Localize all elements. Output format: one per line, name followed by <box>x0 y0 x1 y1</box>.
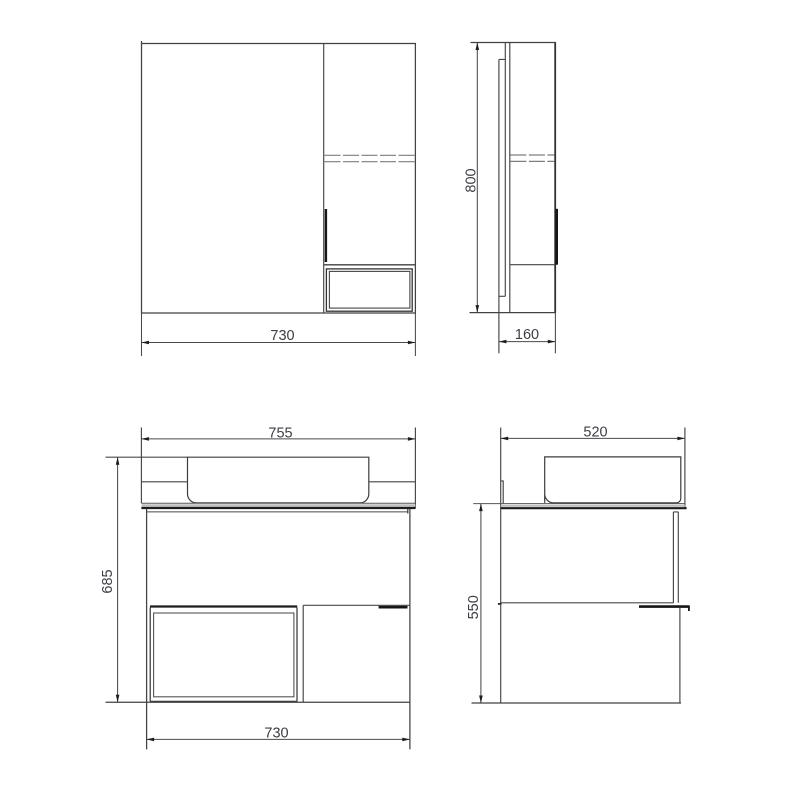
svg-text:800: 800 <box>463 168 479 192</box>
svg-text:755: 755 <box>268 425 292 441</box>
svg-text:685: 685 <box>100 569 116 593</box>
svg-text:160: 160 <box>515 327 539 343</box>
svg-text:730: 730 <box>264 726 288 742</box>
svg-text:730: 730 <box>270 328 294 344</box>
svg-text:550: 550 <box>466 595 482 619</box>
svg-text:520: 520 <box>583 425 607 441</box>
